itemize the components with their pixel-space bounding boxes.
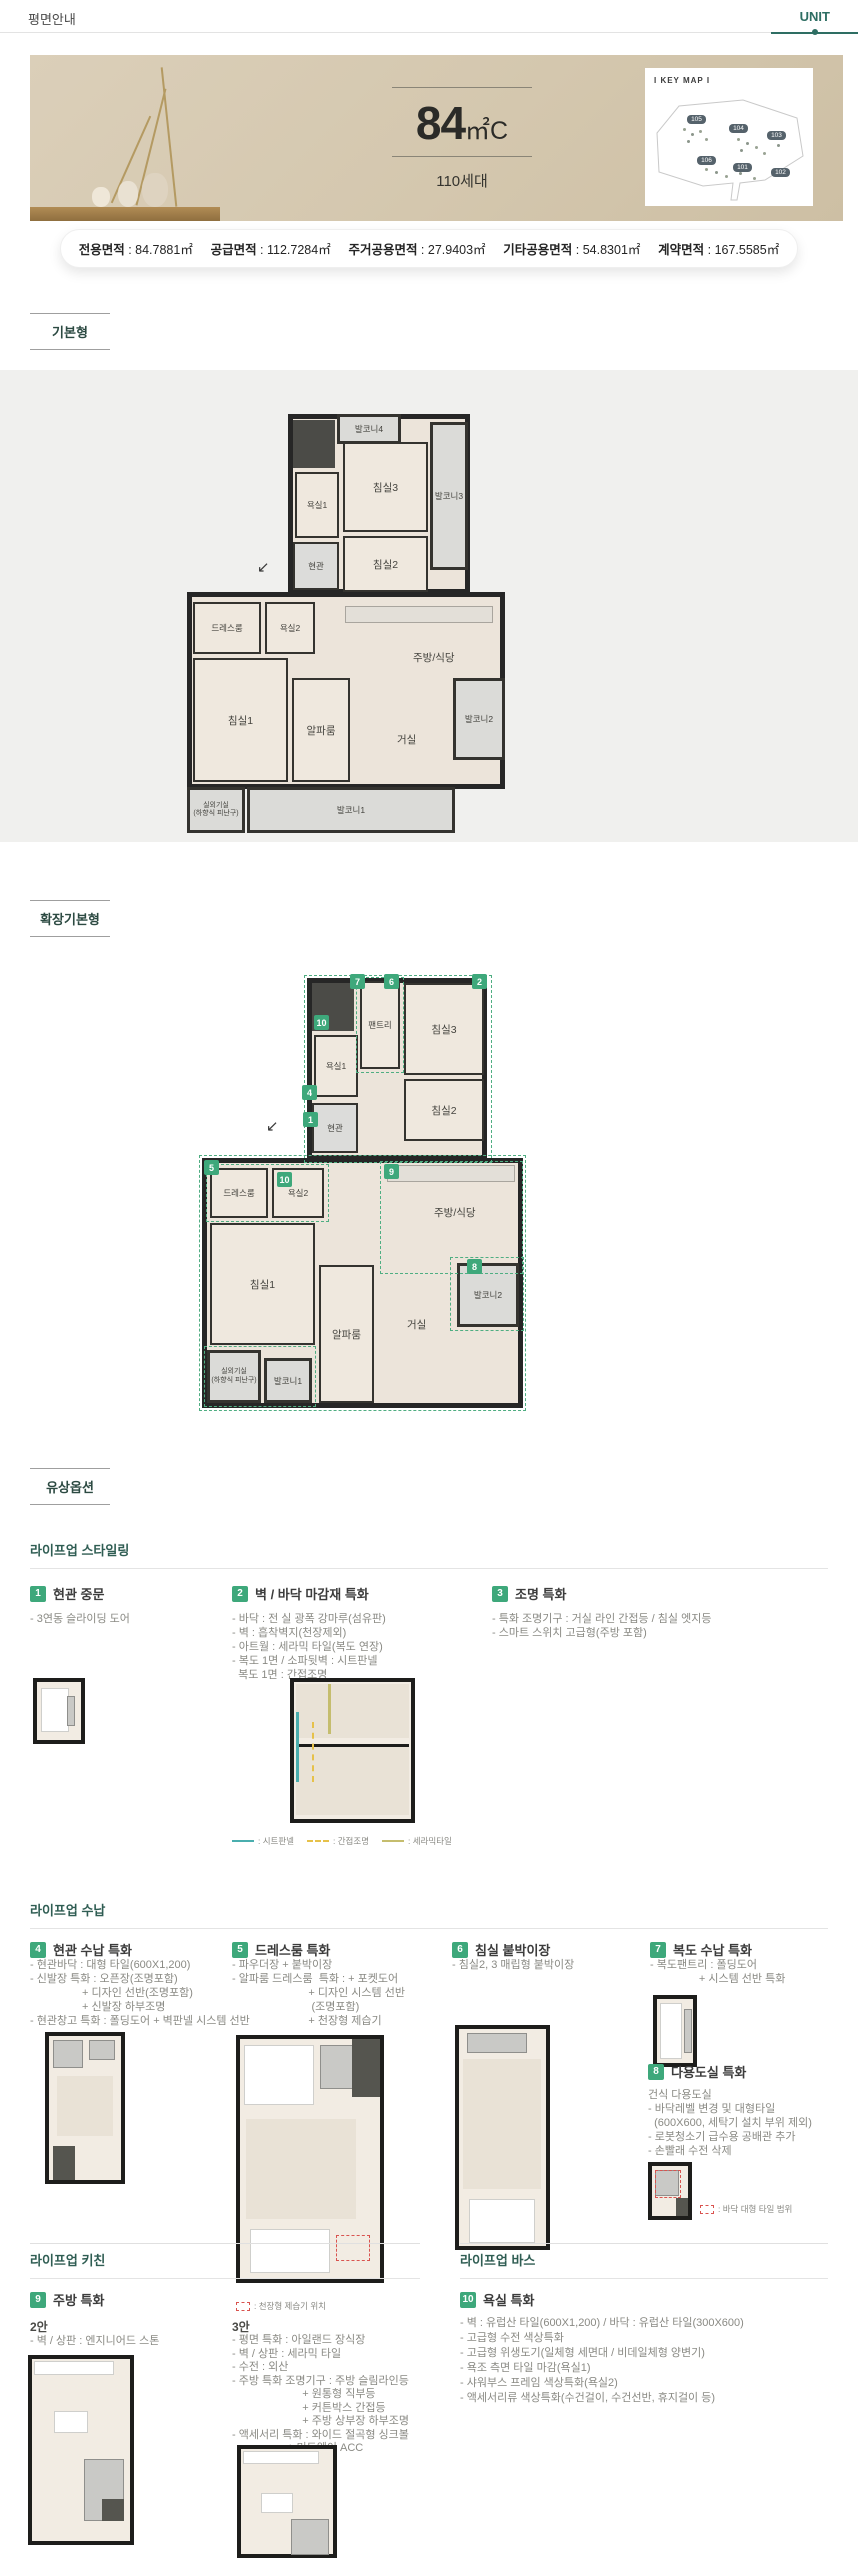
room-bedroom3: 침실3 (343, 442, 428, 532)
ceramic-tile-swatch (382, 1840, 404, 1842)
diagram-wall (676, 2198, 688, 2216)
building-label: 101 (733, 163, 752, 172)
section-label-paid-options: 유상옵션 (30, 1468, 110, 1505)
room-bath1: 욕실1 (314, 1035, 358, 1097)
utility-room-diagram (648, 2162, 692, 2220)
key-map: I KEY MAP I 105 104 103 106 101 102 (645, 68, 813, 206)
page-title: 평면안내 (28, 9, 76, 28)
option-bullets: - 복도팬트리 : 폴딩도어 + 시스템 선반 특화 (650, 1958, 785, 1986)
bullet-line: - 고급형 위생도기(일체형 세면대 / 비데일체형 양변기) (460, 2346, 744, 2361)
kitchen-plan2-diagram (28, 2355, 134, 2545)
option-title: 침실 붙박이장 (475, 1940, 550, 1959)
option-bullets: - 파우더장 + 붙박이장- 알파룸 드레스룸 특화 : + 포켓도어 + 디자… (232, 1958, 405, 2028)
room-living: 거실 (407, 1317, 426, 1332)
bullet-line: - 바닥레벨 변경 및 대형타일 (648, 2102, 812, 2116)
bullet-line: + 원통형 직부등 (232, 2388, 409, 2402)
diagram-wall (352, 2039, 380, 2097)
bullet-line: + 시스템 선반 특화 (650, 1972, 785, 1986)
option-number-badge: 3 (492, 1586, 508, 1602)
room-balcony4: 발코니4 (337, 414, 401, 444)
option-badge: 8 (467, 1259, 482, 1274)
bullet-line: + 천장형 제습기 (232, 2014, 405, 2028)
bullet-line: - 스마트 스위치 고급형(주방 포함) (492, 1626, 711, 1640)
option-bullets: - 침실2, 3 매립형 붙박이장 (452, 1958, 574, 1972)
option-title: 벽 / 바닥 마감재 특화 (255, 1584, 369, 1603)
diagram-pantry-shelf (660, 2003, 682, 2059)
finish-legend: : 시트판넬 : 간접조명 : 세라믹타일 (232, 1835, 452, 1847)
building-dots (683, 128, 686, 131)
area-info-bar: 전용면적 : 84.7881㎡ 공급면적 : 112.7284㎡ 주거공용면적 … (60, 229, 798, 268)
option-bullets: - 특화 조명기구 : 거실 라인 간접등 / 침실 엣지등- 스마트 스위치 … (492, 1612, 711, 1640)
utility-legend: : 바닥 대형 타일 범위 (700, 2203, 792, 2215)
option-bullets: - 벽 / 상판 : 엔지니어드 스톤 (30, 2334, 159, 2348)
bullet-line: - 벽 / 상판 : 엔지니어드 스톤 (30, 2334, 159, 2348)
kitchen-counter (387, 1165, 515, 1182)
site-outline (645, 88, 813, 203)
room-dressroom: 드레스룸 (193, 602, 261, 654)
unit-size-unit: ㎡C (465, 117, 508, 145)
bullet-line: - 복도팬트리 : 폴딩도어 (650, 1958, 785, 1972)
option-item-4: 4 현관 수납 특화 (30, 1940, 132, 1959)
area-item: 주거공용면적 : 27.9403㎡ (348, 239, 485, 258)
area-item: 전용면적 : 84.7881㎡ (79, 239, 193, 258)
option-bullets: 건식 다용도실- 바닥레벨 변경 및 대형타일 (600X600, 세탁기 설치… (648, 2088, 812, 2158)
heading-lifeup-storage: 라이프업 수납 (30, 1900, 828, 1929)
entry-arrow-icon: ↙ (257, 558, 270, 576)
option-item-3: 3 조명 특화 (492, 1584, 566, 1603)
entry-arrow-icon: ↙ (266, 1117, 279, 1135)
section-label-basic: 기본형 (30, 313, 110, 350)
divider (30, 2243, 420, 2244)
hallway-pantry-diagram (653, 1995, 697, 2067)
option-item-5: 5 드레스룸 특화 (232, 1940, 330, 1959)
area-item: 기타공용면적 : 54.8301㎡ (503, 239, 640, 258)
heading-lifeup-bath: 라이프업 바스 (460, 2250, 828, 2279)
bullet-line: - 특화 조명기구 : 거실 라인 간접등 / 침실 엣지등 (492, 1612, 711, 1626)
building-label: 104 (729, 124, 748, 133)
floor-plan-basic: 발코니4 욕실1 현관 침실3 발코니3 침실2 드레스룸 욕실2 주방/식당 … (185, 412, 515, 840)
option-badge: 9 (384, 1164, 399, 1179)
option-item-1: 1 현관 중문 (30, 1584, 104, 1603)
bullet-line: - 로봇청소기 급수용 공배관 추가 (648, 2130, 812, 2144)
section-label-extended: 확장기본형 (30, 900, 110, 937)
room-outdoor-unit: 실외기실(하향식 피난구) (187, 787, 245, 833)
building-dots (705, 168, 708, 171)
legend-item: : 세라믹타일 (382, 1835, 452, 1847)
ceramic-tile-mark (328, 1684, 331, 1734)
bullet-line: 건식 다용도실 (648, 2088, 812, 2102)
shelf-decoration (30, 207, 220, 221)
option-item-2: 2 벽 / 바닥 마감재 특화 (232, 1584, 369, 1603)
bullet-line: - 현관바닥 : 대형 타일(600X1,200) (30, 1958, 250, 1972)
room-bedroom1: 침실1 (193, 658, 288, 782)
building-label: 102 (771, 168, 790, 177)
diagram-island (261, 2493, 293, 2513)
diagram-room (41, 1688, 69, 1732)
red-dashed-swatch (236, 2302, 250, 2311)
option-title: 드레스룸 특화 (255, 1940, 330, 1959)
vase-decoration (92, 187, 110, 207)
option-badge: 2 (472, 974, 487, 989)
wall-floor-finish-diagram (290, 1678, 415, 1823)
bullet-line: - 손빨래 수전 삭제 (648, 2144, 812, 2158)
building-dots (737, 138, 740, 141)
area-item: 계약면적 : 167.5585㎡ (658, 239, 779, 258)
option-title: 현관 수납 특화 (53, 1940, 132, 1959)
bullet-line: - 침실2, 3 매립형 붙박이장 (452, 1958, 574, 1972)
area-item: 공급면적 : 112.7284㎡ (211, 239, 331, 258)
diagram-entrance-floor (57, 2076, 113, 2136)
room-bedroom2: 침실2 (343, 536, 428, 592)
bedroom-closet-diagram (455, 2025, 550, 2250)
option-number-badge: 2 (232, 1586, 248, 1602)
option-number-badge: 5 (232, 1942, 248, 1958)
option-badge: 10 (277, 1172, 292, 1187)
entrance-door-diagram (33, 1678, 85, 1744)
divider (392, 156, 532, 157)
option-number-badge: 10 (460, 2292, 476, 2308)
kitchen-plan3-diagram (237, 2445, 337, 2558)
diagram-island (54, 2411, 88, 2433)
bullet-line: - 아트월 : 세라믹 타일(복도 연장) (232, 1640, 386, 1654)
building-label: 103 (767, 131, 786, 140)
key-map-title: I KEY MAP I (654, 76, 710, 85)
bullet-line: + 디자인 시스템 선반 (232, 1986, 405, 2000)
diagram-tile-zone (655, 2170, 681, 2198)
room-pantry: 팬트리 (360, 981, 400, 1069)
diagram-counter (291, 2519, 329, 2555)
option-number-badge: 4 (30, 1942, 46, 1958)
tab-unit[interactable]: UNIT (800, 9, 830, 24)
option-title: 다용도실 특화 (671, 2062, 746, 2081)
kitchen-option3-label: 3안 (232, 2318, 250, 2335)
page-header: 평면안내 UNIT (0, 0, 858, 33)
building-label: 106 (697, 156, 716, 165)
diagram-folding-door (684, 2009, 692, 2053)
bullet-line: (600X600, 세탁기 설치 부위 제외) (648, 2116, 812, 2130)
room-dressroom: 드레스룸 (210, 1168, 268, 1218)
vase-decoration (142, 173, 168, 207)
heading-lifeup-kitchen: 라이프업 키친 (30, 2250, 420, 2279)
option-title: 욕실 특화 (483, 2290, 534, 2309)
diagram-storage-closet (89, 2040, 115, 2060)
room-bedroom2: 침실2 (404, 1079, 484, 1141)
room-outdoor-unit: 실외기실(하향식 피난구) (207, 1350, 261, 1403)
diagram-wall (102, 2499, 124, 2521)
bullet-line: (조명포함) (232, 2000, 405, 2014)
room-kitchen-dining: 주방/식당 (413, 650, 455, 665)
room-shaft (293, 420, 335, 468)
heading-lifeup-styling: 라이프업 스타일링 (30, 1540, 828, 1569)
bullet-line: - 현관창고 특화 : 폴딩도어 + 벽판넬 시스템 선반 (30, 2014, 250, 2028)
room-bedroom3: 침실3 (404, 983, 484, 1075)
diagram-closet (469, 2199, 535, 2243)
entrance-storage-diagram (45, 2032, 125, 2184)
bullet-line: - 수전 : 외산 (232, 2361, 409, 2375)
room-entrance: 현관 (293, 542, 339, 590)
room-living: 거실 (397, 732, 416, 747)
bullet-line: - 파우더장 + 붙박이장 (232, 1958, 405, 1972)
room-balcony2: 발코니2 (453, 678, 505, 760)
option-badge: 6 (384, 974, 399, 989)
option-badge: 5 (204, 1160, 219, 1175)
diagram-wall (53, 2146, 75, 2180)
diagram-door (67, 1696, 75, 1726)
diagram-builtin-closet (467, 2033, 527, 2053)
household-count: 110세대 (382, 170, 542, 191)
dressroom-legend: : 천장형 제습기 위치 (236, 2300, 326, 2312)
room-balcony3: 발코니3 (430, 422, 468, 570)
bullet-line: + 신발장 하부조명 (30, 2000, 250, 2014)
option-item-6: 6 침실 붙박이장 (452, 1940, 550, 1959)
option-number-badge: 9 (30, 2292, 46, 2308)
option-title: 주방 특화 (53, 2290, 104, 2309)
room-alpha: 알파룸 (292, 678, 350, 782)
option-bullets: - 바닥 : 전 실 광폭 강마루(섬유판)- 벽 : 흡착벽지(천장제외)- … (232, 1612, 386, 1682)
diagram-upper-cabinet (243, 2451, 319, 2464)
bullet-line: - 벽 : 유럽산 타일(600X1,200) / 바닥 : 유럽산 타일(30… (460, 2316, 744, 2331)
unit-summary: 84㎡C 110세대 (382, 87, 542, 191)
option-title: 조명 특화 (515, 1584, 566, 1603)
bullet-line: - 욕조 측면 타일 마감(욕실1) (460, 2361, 744, 2376)
floor-plan-extended: 팬트리 욕실1 현관 침실3 침실2 드레스룸 욕실2 주방/식당 침실1 알파… (202, 965, 532, 1420)
option-item-10: 10 욕실 특화 (460, 2290, 534, 2309)
room-bedroom1: 침실1 (210, 1223, 315, 1345)
option-number-badge: 8 (648, 2064, 664, 2080)
room-entrance: 현관 (312, 1103, 358, 1153)
bullet-line: - 벽 / 상판 : 세라믹 타일 (232, 2348, 409, 2362)
building-label: 105 (687, 115, 706, 124)
option-badge: 1 (303, 1112, 318, 1127)
bullet-line: - 액세서리류 색상특화(수건걸이, 수건선반, 휴지걸이 등) (460, 2391, 744, 2406)
bullet-line: + 디자인 선반(조명포함) (30, 1986, 250, 2000)
divider (460, 2243, 828, 2244)
bullet-line: - 고급형 수전 색상특화 (460, 2331, 744, 2346)
tab-active-dot (812, 29, 818, 35)
option-item-8: 8 다용도실 특화 (648, 2062, 746, 2081)
option-bullets: - 벽 : 유럽산 타일(600X1,200) / 바닥 : 유럽산 타일(30… (460, 2316, 744, 2406)
sheet-panel-swatch (232, 1840, 254, 1842)
unit-size: 84㎡C (382, 88, 542, 156)
room-kitchen-dining: 주방/식당 (434, 1205, 476, 1220)
option-bullets: - 평면 특화 : 아일랜드 장식장- 벽 / 상판 : 세라믹 타일- 수전 … (232, 2334, 409, 2456)
bullet-line: - 복도 1면 / 소파뒷벽 : 시트판넬 (232, 1654, 386, 1668)
floor-plan-page: 평면안내 UNIT 84㎡C 110세대 I KEY MAP I 105 104… (0, 0, 858, 2560)
option-title: 복도 수납 특화 (673, 1940, 752, 1959)
option-title: 현관 중문 (53, 1584, 104, 1603)
option-number-badge: 1 (30, 1586, 46, 1602)
bullet-line: - 액세서리 특화 : 와이드 절곡형 싱크볼 (232, 2429, 409, 2443)
unit-size-number: 84 (416, 97, 465, 149)
bullet-line: - 알파룸 드레스룸 특화 : + 포켓도어 (232, 1972, 405, 1986)
legend-item: : 시트판넬 (232, 1835, 294, 1847)
legend-item: : 천장형 제습기 위치 (236, 2300, 326, 2312)
room-balcony1: 발코니1 (264, 1358, 312, 1403)
sheet-panel-mark (296, 1712, 299, 1782)
bullet-line: + 커튼박스 간접등 (232, 2402, 409, 2416)
dressroom-diagram (236, 2035, 384, 2283)
legend-item: : 간접조명 (307, 1835, 369, 1847)
red-dashed-swatch (700, 2205, 714, 2214)
bullet-line: - 벽 : 흡착벽지(천장제외) (232, 1626, 386, 1640)
bullet-line: - 평면 특화 : 아일랜드 장식장 (232, 2334, 409, 2348)
vase-decoration (118, 181, 138, 207)
bullet-line: - 신발장 특화 : 오픈장(조명포함) (30, 1972, 250, 1986)
option-item-7: 7 복도 수납 특화 (650, 1940, 752, 1959)
indirect-light-mark (312, 1722, 314, 1782)
kitchen-option2-label: 2안 (30, 2318, 48, 2335)
diagram-alpha-room (246, 2119, 356, 2219)
bullet-line: - 샤워부스 프레임 색상특화(욕실2) (460, 2376, 744, 2391)
room-alpha: 알파룸 (319, 1265, 374, 1403)
indirect-light-swatch (307, 1840, 329, 1842)
option-badge: 10 (314, 1015, 329, 1030)
option-bullets: - 3연동 슬라이딩 도어 (30, 1612, 130, 1626)
bullet-line: + 주방 상부장 하부조명 (232, 2415, 409, 2429)
option-bullets: - 현관바닥 : 대형 타일(600X1,200)- 신발장 특화 : 오픈장(… (30, 1958, 250, 2028)
room-bath1: 욕실1 (295, 472, 339, 538)
diagram-powder-cabinet (244, 2045, 314, 2105)
diagram-upper-cabinet (34, 2361, 114, 2375)
bullet-line: - 주방 특화 조명기구 : 주방 슬림라인등 (232, 2375, 409, 2389)
room-bath2: 욕실2 (265, 602, 315, 654)
kitchen-counter (345, 606, 493, 623)
room-balcony1: 발코니1 (247, 787, 455, 833)
diagram-shoe-cabinet (53, 2040, 83, 2068)
option-badge: 7 (350, 974, 365, 989)
diagram-bedroom (463, 2059, 541, 2189)
legend-item: : 바닥 대형 타일 범위 (700, 2203, 792, 2215)
bullet-line: - 3연동 슬라이딩 도어 (30, 1612, 130, 1626)
option-badge: 4 (302, 1085, 317, 1100)
option-number-badge: 6 (452, 1942, 468, 1958)
hero-banner: 84㎡C 110세대 I KEY MAP I 105 104 103 106 1… (30, 55, 843, 221)
basic-plan-background: 발코니4 욕실1 현관 침실3 발코니3 침실2 드레스룸 욕실2 주방/식당 … (0, 370, 858, 842)
option-item-9: 9 주방 특화 (30, 2290, 104, 2309)
bullet-line: - 바닥 : 전 실 광폭 강마루(섬유판) (232, 1612, 386, 1626)
option-number-badge: 7 (650, 1942, 666, 1958)
